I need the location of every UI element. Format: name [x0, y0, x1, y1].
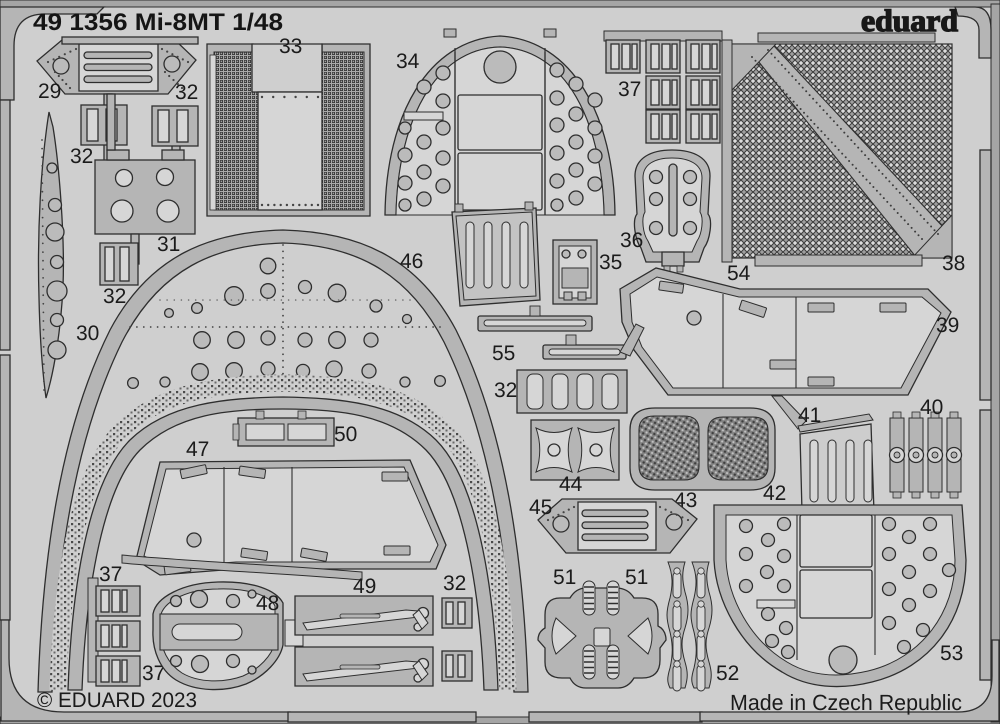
svg-text:40: 40	[920, 396, 943, 419]
svg-text:32: 32	[494, 379, 517, 402]
svg-text:49: 49	[353, 575, 376, 598]
svg-text:55: 55	[492, 342, 515, 365]
svg-text:42: 42	[763, 482, 786, 505]
svg-text:32: 32	[443, 572, 466, 595]
svg-text:52: 52	[716, 662, 739, 685]
svg-text:51: 51	[625, 566, 648, 589]
svg-text:46: 46	[400, 250, 423, 273]
svg-text:34: 34	[396, 50, 420, 73]
svg-text:38: 38	[942, 252, 965, 275]
svg-text:48: 48	[256, 592, 279, 615]
svg-text:32: 32	[70, 145, 93, 168]
svg-text:39: 39	[936, 314, 959, 337]
svg-text:31: 31	[157, 233, 180, 256]
svg-text:29: 29	[38, 80, 61, 103]
svg-text:44: 44	[559, 473, 583, 496]
svg-text:35: 35	[599, 251, 622, 274]
svg-text:Made in Czech Republic: Made in Czech Republic	[730, 690, 962, 715]
svg-text:51: 51	[553, 566, 576, 589]
svg-text:30: 30	[76, 322, 99, 345]
svg-text:32: 32	[103, 285, 126, 308]
svg-text:41: 41	[798, 404, 821, 427]
svg-text:45: 45	[529, 496, 552, 519]
svg-text:50: 50	[334, 423, 357, 446]
svg-text:33: 33	[279, 35, 302, 58]
svg-text:47: 47	[186, 438, 209, 461]
svg-text:37: 37	[618, 78, 641, 101]
svg-text:© EDUARD 2023: © EDUARD 2023	[37, 689, 197, 712]
svg-text:54: 54	[727, 262, 751, 285]
svg-text:32: 32	[175, 81, 198, 104]
svg-text:36: 36	[620, 229, 643, 252]
svg-text:49 1356 Mi-8MT 1/48: 49 1356 Mi-8MT 1/48	[33, 9, 283, 36]
svg-text:37: 37	[99, 563, 122, 586]
svg-text:53: 53	[940, 642, 963, 665]
